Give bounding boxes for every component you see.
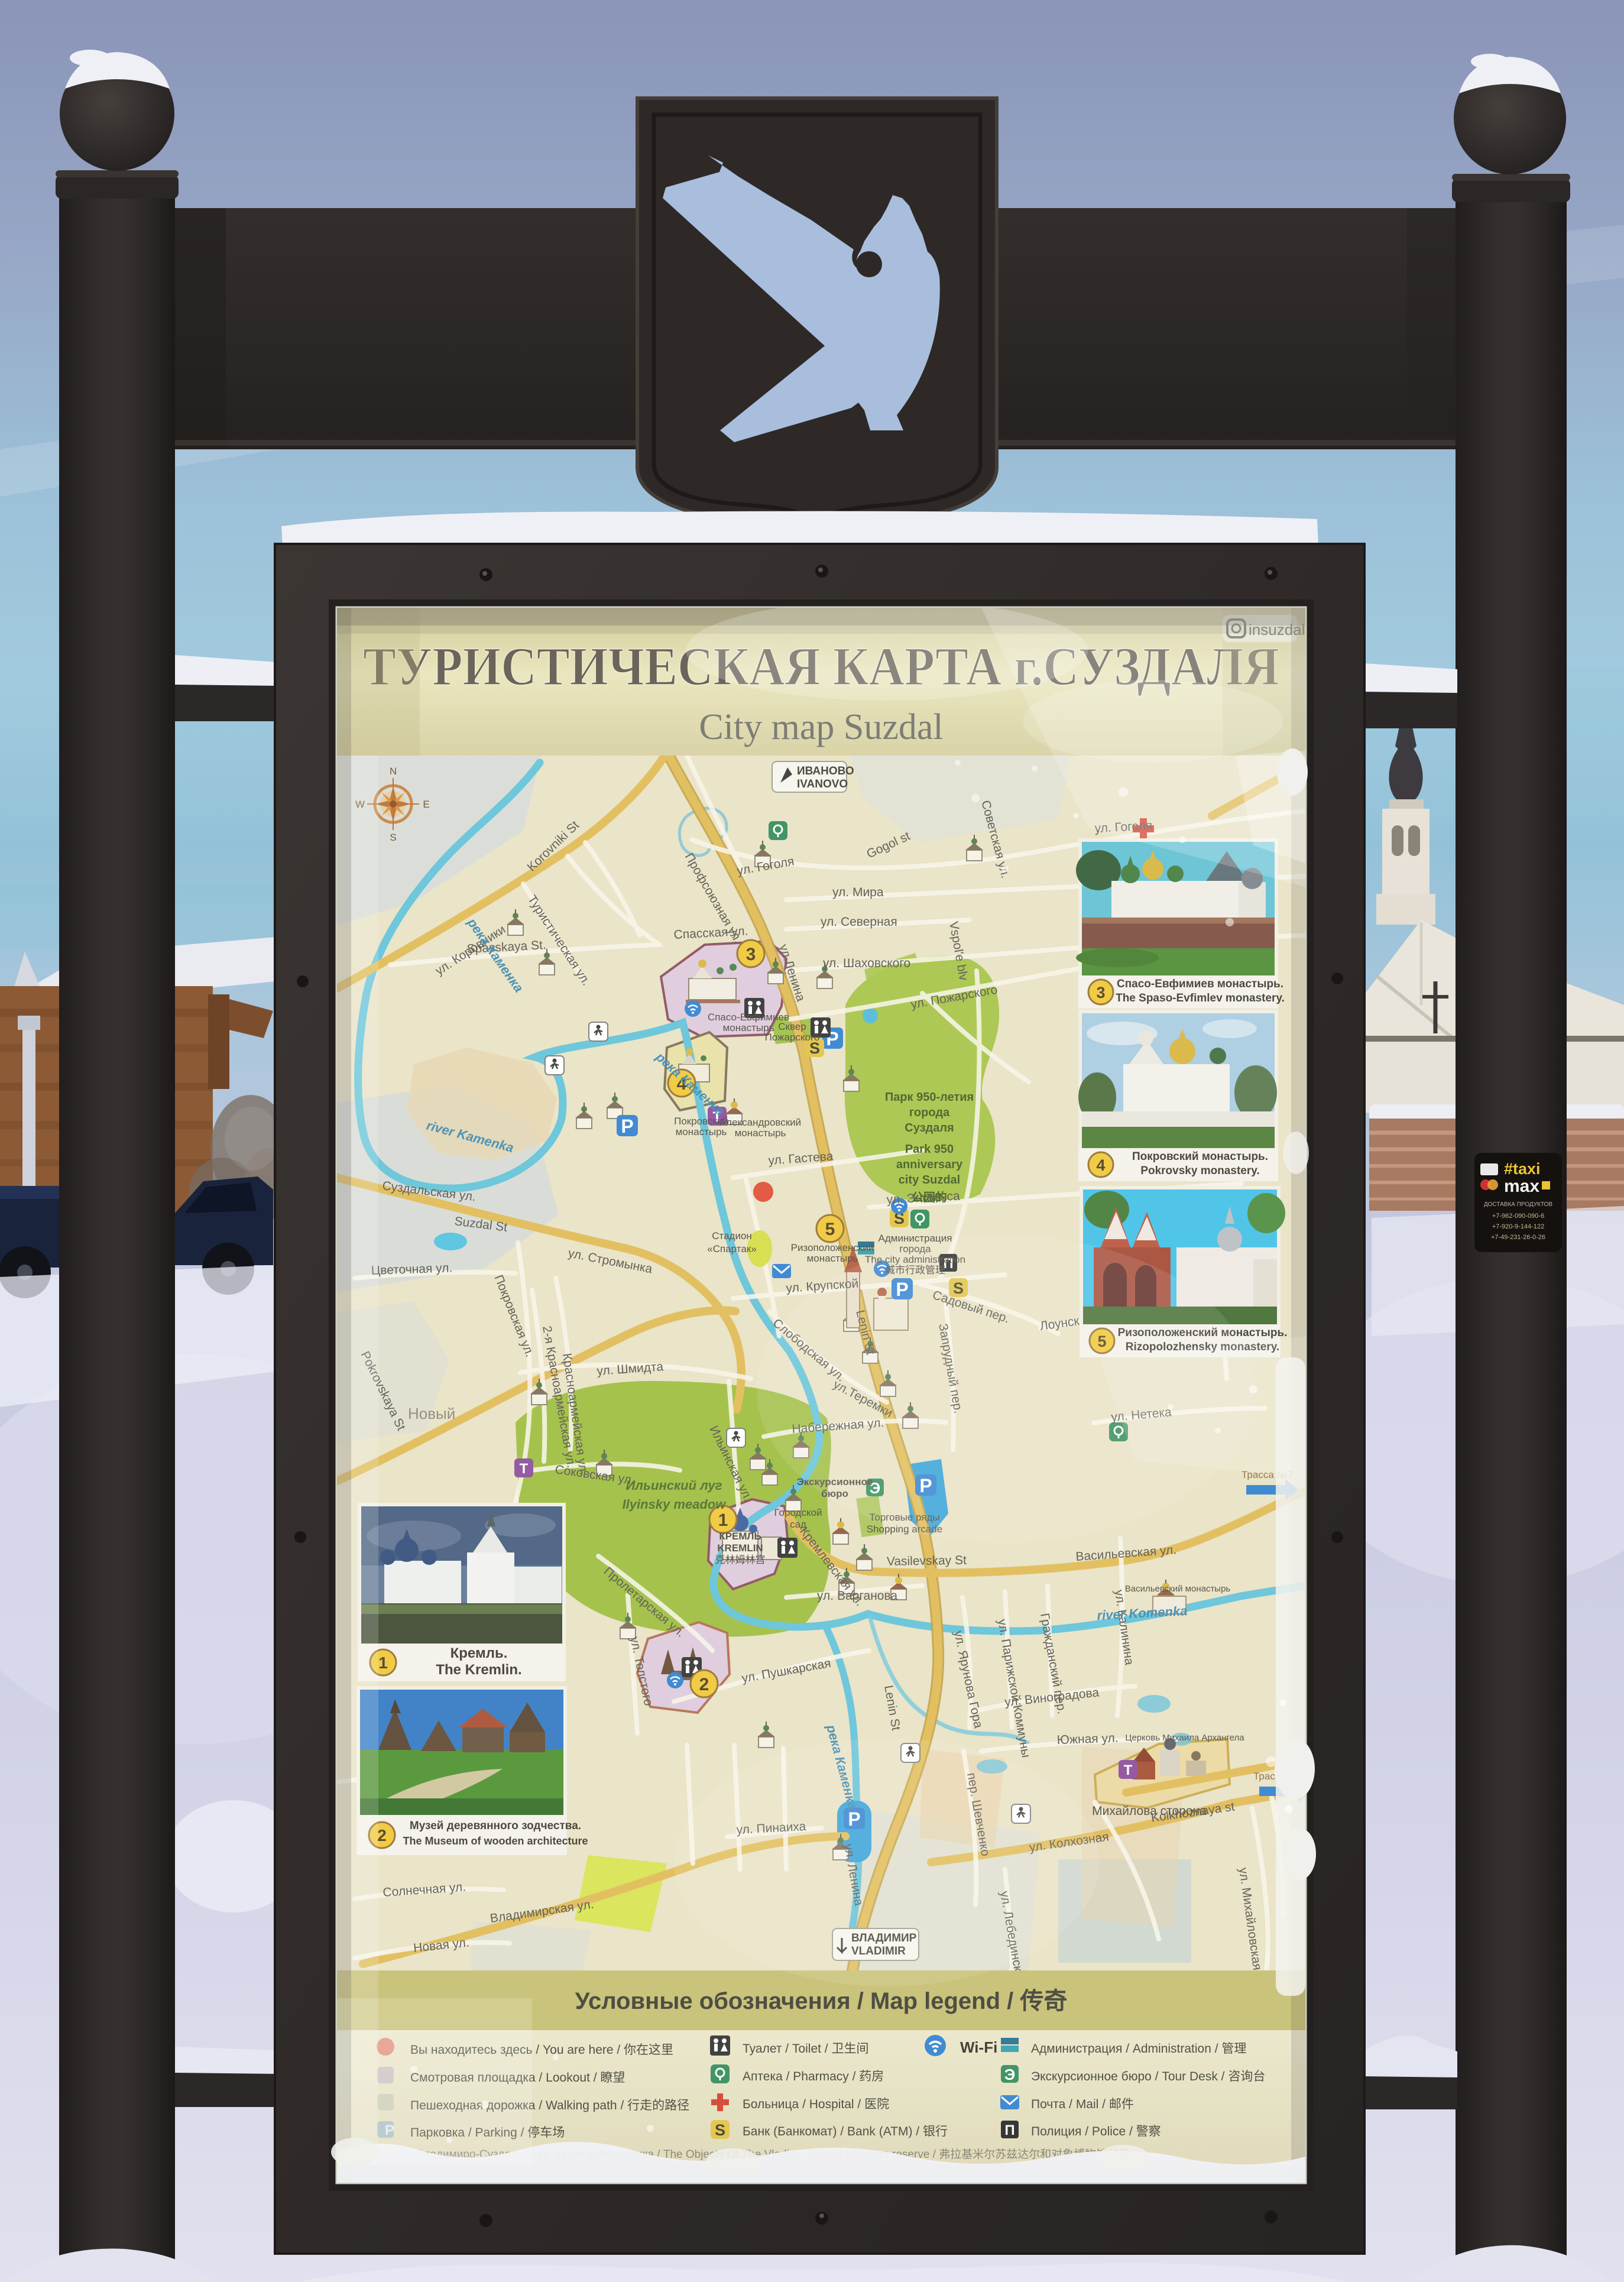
svg-text:#taxi: #taxi — [1504, 1160, 1541, 1178]
svg-text:ДОСТАВКА ПРОДУКТОВ: ДОСТАВКА ПРОДУКТОВ — [1484, 1201, 1553, 1208]
svg-text:max: max — [1504, 1176, 1539, 1196]
svg-text:+7-920-9-144-122: +7-920-9-144-122 — [1492, 1223, 1544, 1230]
svg-text:+7-49-231-26-0-26: +7-49-231-26-0-26 — [1491, 1234, 1545, 1241]
svg-text:+7-962-090-090-6: +7-962-090-090-6 — [1492, 1213, 1544, 1220]
